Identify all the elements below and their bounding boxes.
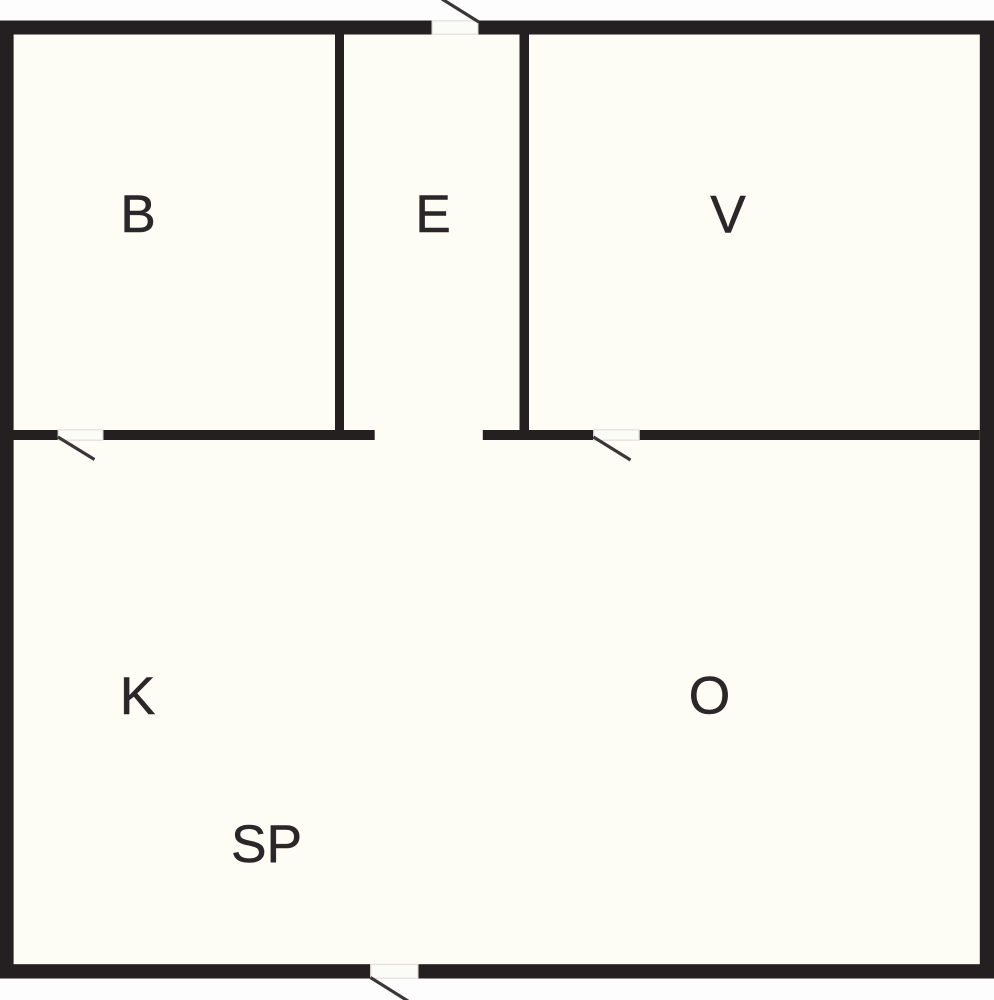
svg-text:O: O [689, 667, 730, 726]
svg-text:V: V [710, 186, 746, 245]
svg-text:K: K [120, 667, 156, 726]
svg-text:E: E [415, 185, 451, 244]
svg-text:SP: SP [231, 815, 302, 874]
svg-text:B: B [120, 185, 156, 244]
